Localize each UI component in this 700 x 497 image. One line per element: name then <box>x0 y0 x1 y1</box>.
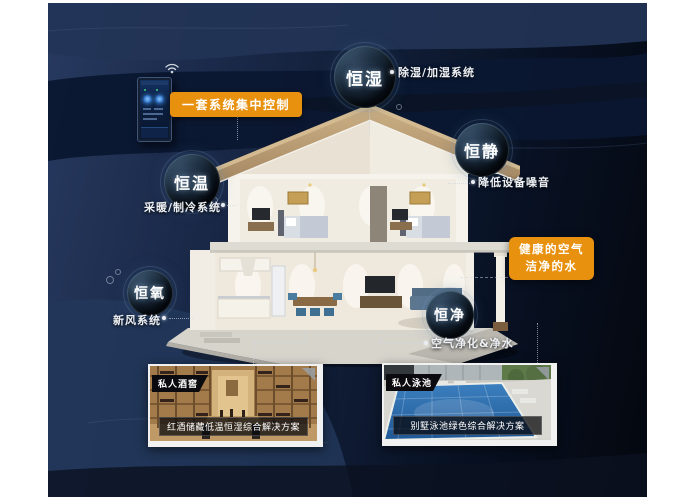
connector-wine-v1 <box>305 330 306 342</box>
connector-temperature <box>227 205 237 206</box>
mini-bubble <box>115 269 121 275</box>
phone-indicator <box>144 89 146 91</box>
card-private-pool: 私人泳池 别墅泳池绿色综合解决方案 <box>382 363 557 446</box>
highlight-line2: 洁净的水 <box>519 258 584 275</box>
connector-control <box>237 114 238 140</box>
phone-screen <box>140 80 169 139</box>
phone-app-titlebar <box>141 81 168 85</box>
connector-pool <box>537 323 538 363</box>
phone-bottom-panel <box>141 127 168 138</box>
connector-oxygen <box>169 318 193 319</box>
note-humidity-system: 除湿/加湿系统 <box>398 64 475 80</box>
note-purification: 空气净化&净水 <box>431 335 514 351</box>
bubble-constant-oxygen: 恒氧 <box>127 270 173 316</box>
wine-cellar-tag: 私人酒窖 <box>152 375 208 392</box>
connector-clean-h <box>380 343 424 344</box>
wine-cellar-photo: 私人酒窖 红酒储藏低温恒湿综合解决方案 <box>150 366 317 441</box>
control-system-label: 一套系统集中控制 <box>170 92 302 117</box>
connector-quiet <box>448 183 470 184</box>
phone-text-bar <box>143 113 163 115</box>
phone-dial <box>143 95 152 104</box>
connector-wine-v2 <box>253 342 254 364</box>
note-bullet <box>162 316 166 320</box>
card-wine-cellar: 私人酒窖 红酒储藏低温恒湿综合解决方案 <box>148 364 323 447</box>
bubble-constant-humidity: 恒湿 <box>334 46 396 108</box>
bubble-constant-clean: 恒净 <box>426 291 474 339</box>
wifi-icon <box>164 61 180 74</box>
pool-caption: 别墅泳池绿色综合解决方案 <box>393 416 542 435</box>
house-mid-slab <box>210 242 520 253</box>
highlight-healthy-air-water: 健康的空气 洁净的水 <box>509 237 594 280</box>
phone-dial <box>155 95 164 104</box>
smart-home-app-phone <box>137 77 172 142</box>
bubble-constant-quiet: 恒静 <box>455 123 509 177</box>
phone-text-bar <box>143 108 151 110</box>
phone-indicator <box>156 89 158 91</box>
scene-canvas: 一套系统集中控制 恒湿 恒静 恒温 恒氧 恒净 除湿/加湿系统 降低设备噪音 采… <box>48 3 647 497</box>
pool-tag: 私人泳池 <box>386 374 442 391</box>
note-noise-reduction: 降低设备噪音 <box>478 174 550 190</box>
mini-bubble <box>396 104 402 110</box>
connector-clean-v <box>380 330 381 343</box>
highlight-line1: 健康的空气 <box>519 241 584 258</box>
pool-photo: 私人泳池 别墅泳池绿色综合解决方案 <box>384 365 551 440</box>
infographic-frame: 一套系统集中控制 恒湿 恒静 恒温 恒氧 恒净 除湿/加湿系统 降低设备噪音 采… <box>0 0 700 497</box>
note-bullet <box>471 180 475 184</box>
connector-wine-h <box>253 342 305 343</box>
note-bullet <box>424 341 428 345</box>
note-bullet <box>390 70 394 74</box>
phone-text-bar <box>154 108 163 110</box>
note-fresh-air: 新风系统 <box>113 312 161 328</box>
note-heating-cooling: 采暖/制冷系统 <box>144 199 221 215</box>
wine-cellar-caption: 红酒储藏低温恒湿综合解决方案 <box>159 417 308 436</box>
phone-text-bar <box>143 118 157 120</box>
house-upper-floor <box>228 172 468 242</box>
mini-bubble <box>106 276 114 284</box>
note-bullet <box>221 203 225 207</box>
